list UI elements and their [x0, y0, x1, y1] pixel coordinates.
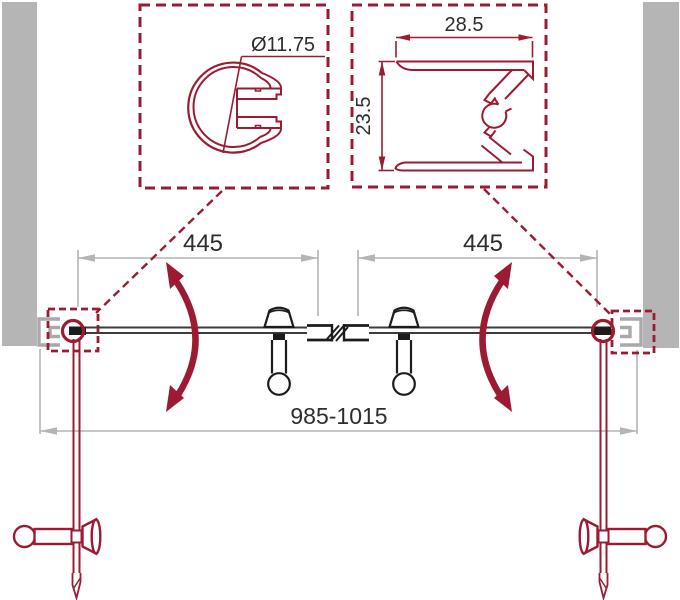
right-wall-profile-section	[620, 319, 641, 345]
door-swing-arrow-left	[166, 262, 196, 412]
dimension-right-panel: 445	[358, 230, 597, 316]
wall-profile-dimension-depth: 23.5	[353, 62, 395, 171]
left-door-open-position	[73, 339, 81, 598]
pivot-diameter-label: Ø11.75	[251, 34, 315, 56]
wall-profile-drawing	[396, 62, 534, 171]
leader-line-right	[484, 189, 611, 315]
left-wall	[2, 2, 37, 346]
dimension-overall-width: 985-1015	[40, 349, 637, 435]
knob-handle-left-open	[14, 520, 100, 554]
left-panel-width-label: 445	[183, 230, 223, 257]
knob-handle-right-closed	[390, 308, 419, 395]
right-pivot-hinge	[593, 321, 614, 342]
left-wall-profile-section	[39, 319, 60, 345]
center-magnet-profile	[307, 324, 369, 342]
pivot-profile-drawing	[188, 57, 325, 154]
shower-door-diagram: 985-1015 445 445	[0, 0, 680, 600]
knob-handle-right-open	[580, 520, 666, 554]
technical-drawing-page: 985-1015 445 445	[0, 0, 680, 600]
right-door-open-position	[600, 339, 608, 598]
door-swing-arrow-right	[482, 262, 512, 412]
overall-width-label: 985-1015	[290, 403, 387, 429]
dimension-left-panel: 445	[78, 230, 318, 316]
wall-profile-depth-label: 23.5	[353, 97, 375, 136]
right-panel-width-label: 445	[463, 230, 503, 257]
left-pivot-hinge	[63, 321, 87, 342]
wall-profile-dimension-width: 28.5	[396, 14, 533, 58]
right-wall	[643, 2, 679, 348]
wall-profile-width-label: 28.5	[445, 14, 484, 36]
knob-handle-left-closed	[265, 308, 294, 395]
